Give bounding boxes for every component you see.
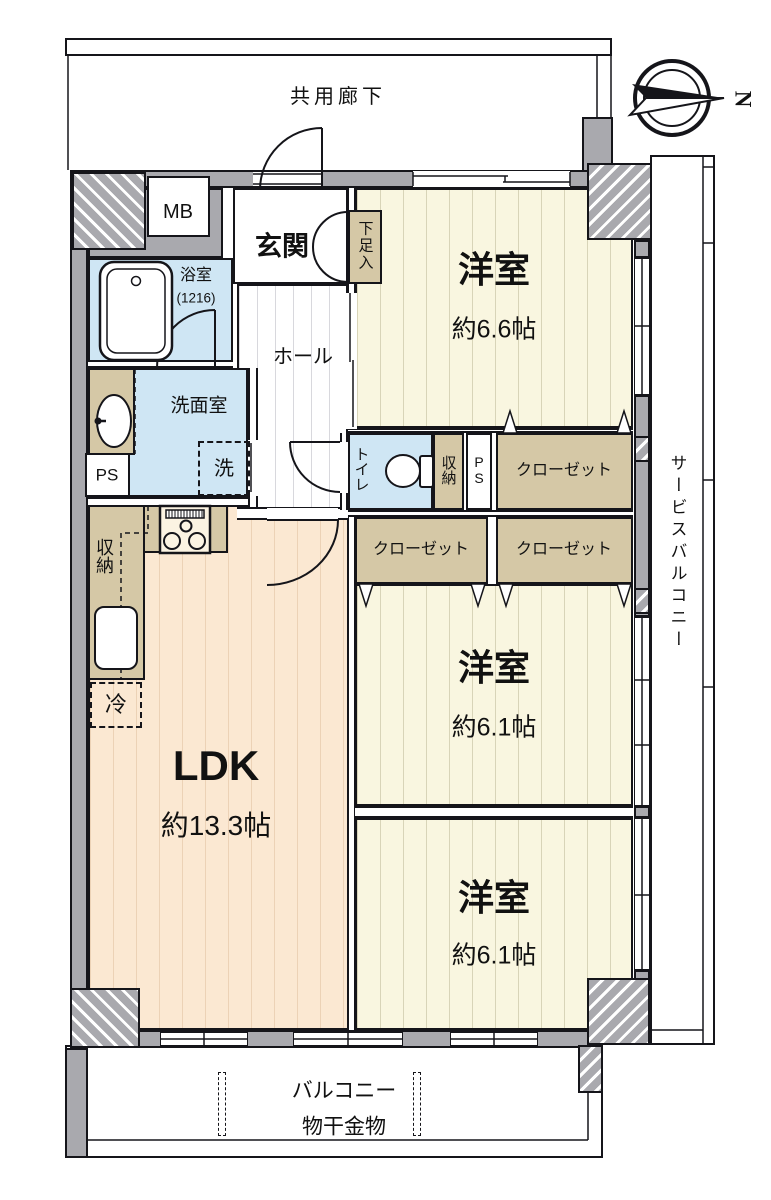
storage-mid-label: 収納 — [441, 455, 456, 485]
bedroom1-right-window — [634, 258, 650, 395]
toilet-door-opening — [340, 442, 348, 493]
ps-mid-label: PS — [472, 454, 486, 486]
fridge-label: 冷 — [105, 694, 127, 716]
wall-hatch-right-a — [634, 436, 650, 462]
washroom-label: 洗面室 — [170, 397, 227, 416]
ldk-bottom-window-1 — [160, 1032, 248, 1046]
service-balcony-label: サービスバルコニー — [669, 454, 686, 652]
kitchen-storage-label: 収納 — [95, 538, 113, 574]
wall-right-seg3 — [634, 806, 650, 818]
ldk-size: 約13.3帖 — [161, 812, 272, 840]
wall-left — [70, 170, 88, 1063]
bedroom3-size: 約6.1帖 — [452, 944, 537, 969]
ldk-label: LDK — [173, 745, 259, 787]
laundry-pole-mark-left — [218, 1072, 226, 1136]
wall-right-seg1 — [634, 240, 650, 258]
bedroom-2-floor — [355, 584, 633, 806]
wall-hatch-right-b — [634, 588, 650, 614]
vanity-counter — [88, 368, 135, 455]
partition-closet-rows — [348, 510, 633, 517]
entrance-door-opening — [253, 172, 322, 186]
mb-label: MB — [163, 202, 193, 222]
bedroom2-right-window — [634, 617, 650, 806]
partition-washroom-kitchen — [88, 497, 248, 507]
hall-label: ホール — [273, 347, 333, 367]
bedroom3-bottom-window — [450, 1032, 538, 1046]
corridor-label: 共用廊下 — [290, 87, 386, 107]
bedroom1-size: 約6.6帖 — [452, 318, 537, 343]
balcony-label: バルコニー — [292, 1081, 397, 1102]
bedroom1-label: 洋室 — [458, 252, 530, 288]
washer-label: 洗 — [214, 459, 234, 479]
compass-needle-white — [630, 98, 724, 115]
toilet-label: トイレ — [354, 447, 369, 492]
compass-icon — [630, 61, 724, 135]
compass-north-label: N — [732, 91, 755, 108]
bedroom2-label: 洋室 — [458, 650, 530, 686]
bedroom1-sliding-door — [345, 293, 357, 429]
entrance-label: 玄関 — [255, 234, 309, 261]
bathroom-label: 浴室 — [180, 268, 212, 284]
partition-ldk-bedrooms-lower — [347, 510, 356, 1030]
closet-bottom-left-label: クローゼット — [373, 542, 469, 558]
balcony-hardware-label: 物干金物 — [302, 1117, 386, 1138]
wall-hatch-topright — [587, 163, 652, 240]
shoe-box-label: 下足入 — [358, 221, 373, 272]
ps-left-label: PS — [96, 467, 119, 484]
bathroom-size: (1216) — [176, 291, 215, 305]
wall-step-bottomright — [578, 1045, 603, 1093]
ldk-bottom-window-2 — [293, 1032, 403, 1046]
wall-hatch-topleft — [72, 172, 146, 250]
floor-plan: 共用廊下 N MB 玄関 下足入 浴室 (1216) ホール 洗面室 洗 PS … — [0, 0, 771, 1200]
wall-hatch-bottomleft — [70, 988, 140, 1048]
laundry-pole-mark-right — [413, 1072, 421, 1136]
bedroom3-right-window — [634, 818, 650, 970]
bedroom3-label: 洋室 — [458, 880, 530, 916]
bedroom1-top-window-opening — [413, 171, 570, 187]
partition-bath-washroom — [88, 360, 233, 368]
closet-bottom-right-label: クローゼット — [516, 542, 612, 558]
corridor-bar — [65, 38, 612, 56]
wall-balcony-left — [65, 1048, 88, 1158]
partition-bedroom2-3 — [355, 806, 633, 818]
compass-needle-black — [632, 84, 724, 98]
closet-top-label: クローゼット — [516, 463, 612, 479]
wall-right-seg2 — [634, 395, 650, 617]
bedroom2-size: 約6.1帖 — [452, 716, 537, 741]
wall-hatch-bottomright — [587, 978, 650, 1045]
kitchen-counter-side — [88, 505, 145, 680]
ldk-door-opening — [267, 508, 338, 519]
corridor-right-lines — [597, 56, 611, 117]
